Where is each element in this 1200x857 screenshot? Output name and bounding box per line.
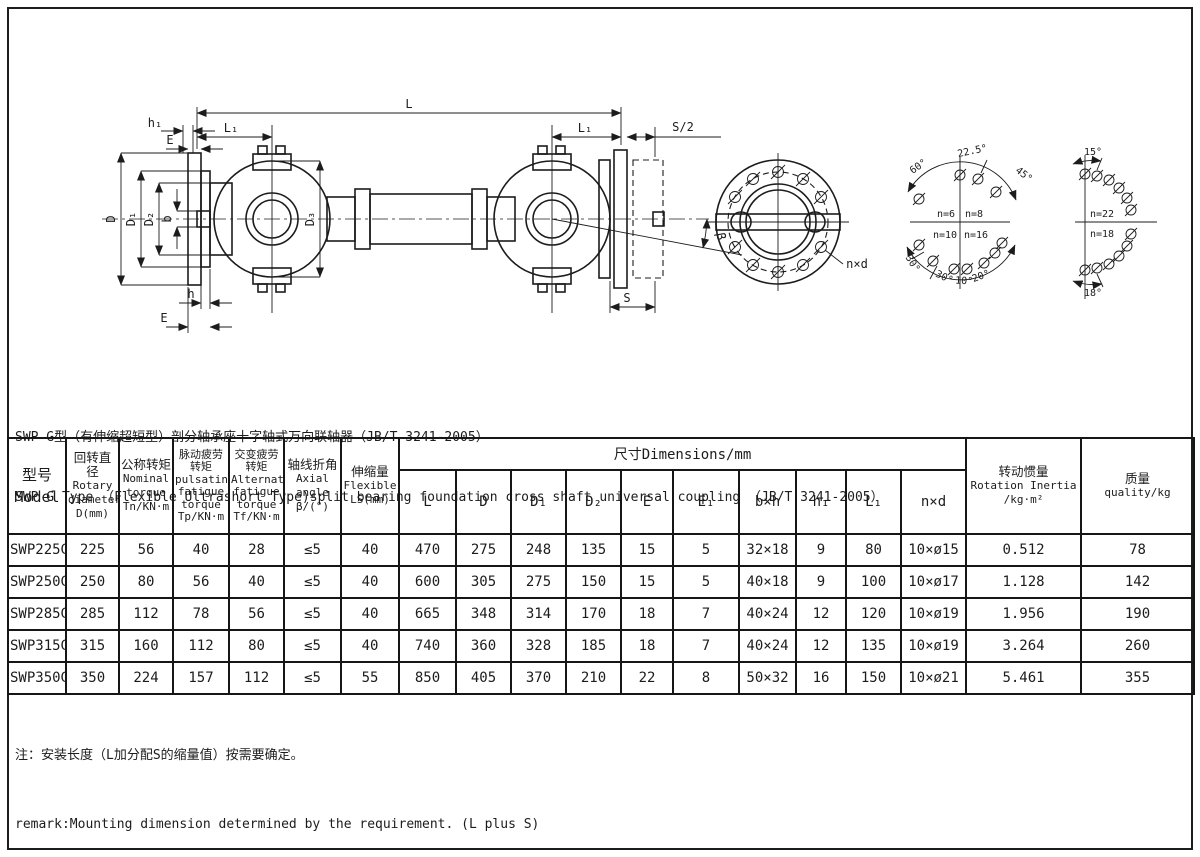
value-cell: 40: [341, 598, 399, 630]
technical-drawing: L L₁ L₁ S/2 h₁ E D: [7, 7, 1193, 390]
value-cell: 135: [846, 630, 901, 662]
col-header-pulsating-torque: 脉动疲劳转矩 pulsating fatigue torque Tp/KN·m: [173, 438, 229, 534]
value-cell: 260: [1081, 630, 1194, 662]
col-group-dimensions: 尺寸Dimensions/mm: [399, 438, 966, 470]
header-line: diameter: [68, 493, 117, 507]
table-row: SWP225G225564028≤54047027524813515532×18…: [8, 534, 1194, 566]
value-cell: 248: [511, 534, 566, 566]
value-cell: 1.128: [966, 566, 1081, 598]
dim-label-S: S: [623, 291, 630, 305]
value-cell: 250: [66, 566, 119, 598]
count-label-n22: n=22: [1090, 209, 1114, 220]
value-cell: 100: [846, 566, 901, 598]
bolt-angle-view-2: 15° 18° n=22 n=18: [1073, 147, 1157, 299]
col-header-quality: 质量 quality/kg: [1081, 438, 1194, 534]
header-line: Rotation Inertia: [968, 479, 1079, 493]
angle-label-18: 18°: [1084, 288, 1102, 299]
col-header-bxh: b×h: [739, 470, 796, 534]
dim-label-E-bottom: E: [160, 311, 167, 325]
dim-label-b: b: [160, 215, 174, 222]
count-label-n10: n=10: [933, 230, 957, 241]
value-cell: 135: [566, 534, 621, 566]
value-cell: 50×32: [739, 662, 796, 694]
model-cell: SWP315G: [8, 630, 66, 662]
col-header-rotary-diameter: 回转直径 Rotary diameter D(mm): [66, 438, 119, 534]
header-line: D(mm): [68, 507, 117, 521]
header-line: fatigue: [175, 486, 227, 499]
value-cell: 210: [566, 662, 621, 694]
col-header-alternating-torque: 交变疲劳转矩 Alternating fatigue torque Tf/KN·…: [229, 438, 284, 534]
value-cell: 80: [229, 630, 284, 662]
header-line: 回转直径: [68, 451, 117, 479]
value-cell: 157: [173, 662, 229, 694]
value-cell: 10×ø19: [901, 598, 966, 630]
value-cell: 32×18: [739, 534, 796, 566]
value-cell: 7: [673, 630, 739, 662]
dim-label-nxd: n×d: [846, 257, 868, 271]
col-header-L1: L₁: [846, 470, 901, 534]
value-cell: 348: [456, 598, 511, 630]
value-cell: 16: [796, 662, 846, 694]
header-line: Flexible: [343, 479, 397, 493]
value-cell: 305: [456, 566, 511, 598]
value-cell: 78: [1081, 534, 1194, 566]
flange-face-view: n×d: [707, 153, 868, 291]
model-cell: SWP285G: [8, 598, 66, 630]
value-cell: 56: [229, 598, 284, 630]
model-cell: SWP250G: [8, 566, 66, 598]
value-cell: 3.264: [966, 630, 1081, 662]
value-cell: 40: [173, 534, 229, 566]
col-header-D1: D₁: [511, 470, 566, 534]
table-row: SWP315G31516011280≤54074036032818518740×…: [8, 630, 1194, 662]
value-cell: 5: [673, 566, 739, 598]
value-cell: 40×24: [739, 598, 796, 630]
header-line: Nominal: [121, 472, 171, 486]
header-line: 轴线折角: [286, 458, 339, 472]
angle-label-45: 45°: [1013, 165, 1034, 185]
angle-label-20: 20°: [971, 268, 992, 285]
dim-label-D: D: [104, 215, 118, 222]
value-cell: 80: [846, 534, 901, 566]
value-cell: 225: [66, 534, 119, 566]
angle-label-15: 15°: [1084, 147, 1102, 158]
col-header-nxd: n×d: [901, 470, 966, 534]
header-line: 转动惯量: [968, 465, 1079, 479]
value-cell: 9: [796, 534, 846, 566]
value-cell: 190: [1081, 598, 1194, 630]
value-cell: 18: [621, 630, 673, 662]
value-cell: 285: [66, 598, 119, 630]
spec-table: 型号 Model 回转直径 Rotary diameter D(mm) 公称转矩…: [7, 437, 1195, 695]
header-line: fatigue: [231, 486, 282, 499]
table-row: SWP285G2851127856≤54066534831417018740×2…: [8, 598, 1194, 630]
value-cell: 22: [621, 662, 673, 694]
value-cell: 314: [511, 598, 566, 630]
value-cell: 350: [66, 662, 119, 694]
value-cell: ≤5: [284, 598, 341, 630]
value-cell: 18: [621, 598, 673, 630]
value-cell: 405: [456, 662, 511, 694]
value-cell: 40: [341, 630, 399, 662]
value-cell: 8: [673, 662, 739, 694]
datasheet-page: L L₁ L₁ S/2 h₁ E D: [0, 0, 1200, 857]
value-cell: 28: [229, 534, 284, 566]
value-cell: 55: [341, 662, 399, 694]
model-cell: SWP225G: [8, 534, 66, 566]
angle-label-30-left: 30°: [903, 253, 922, 274]
value-cell: 5: [673, 534, 739, 566]
value-cell: 850: [399, 662, 456, 694]
dim-label-h1: h₁: [148, 116, 162, 130]
value-cell: 112: [229, 662, 284, 694]
col-header-nominal-torque: 公称转矩 Nominal torque Tn/KN·m: [119, 438, 173, 534]
dim-label-h: h: [187, 287, 194, 301]
value-cell: 40×18: [739, 566, 796, 598]
dim-label-L: L: [405, 97, 412, 111]
col-header-h1: h₁: [796, 470, 846, 534]
value-cell: 40×24: [739, 630, 796, 662]
header-line: quality/kg: [1083, 486, 1192, 500]
dim-label-L1-left: L₁: [224, 121, 238, 135]
value-cell: 600: [399, 566, 456, 598]
value-cell: 355: [1081, 662, 1194, 694]
col-header-D2: D₂: [566, 470, 621, 534]
col-header-E: E: [621, 470, 673, 534]
count-label-n8: n=8: [965, 209, 983, 220]
value-cell: 78: [173, 598, 229, 630]
value-cell: ≤5: [284, 630, 341, 662]
value-cell: 10×ø19: [901, 630, 966, 662]
header-line: 型号: [10, 464, 64, 486]
spec-table-body: SWP225G225564028≤54047027524813515532×18…: [8, 534, 1194, 694]
header-line: Tf/KN·m: [231, 511, 282, 524]
value-cell: 315: [66, 630, 119, 662]
value-cell: 15: [621, 534, 673, 566]
value-cell: 7: [673, 598, 739, 630]
header-line: torque: [121, 486, 171, 500]
header-line: Rotary: [68, 479, 117, 493]
header-line: LS(mm): [343, 493, 397, 507]
value-cell: 5.461: [966, 662, 1081, 694]
count-label-n6: n=6: [937, 209, 955, 220]
value-cell: 40: [229, 566, 284, 598]
value-cell: 40: [341, 566, 399, 598]
value-cell: 112: [119, 598, 173, 630]
value-cell: 160: [119, 630, 173, 662]
value-cell: 0.512: [966, 534, 1081, 566]
remark-en: remark:Mounting dimension determined by …: [15, 813, 539, 836]
value-cell: 10×ø17: [901, 566, 966, 598]
count-label-n18: n=18: [1090, 229, 1114, 240]
value-cell: 120: [846, 598, 901, 630]
value-cell: 360: [456, 630, 511, 662]
header-line: Model: [10, 486, 64, 508]
value-cell: 10×ø15: [901, 534, 966, 566]
table-row: SWP250G250805640≤54060030527515015540×18…: [8, 566, 1194, 598]
header-line: 交变疲劳转矩: [231, 449, 282, 474]
value-cell: 185: [566, 630, 621, 662]
header-line: 公称转矩: [121, 458, 171, 472]
col-header-L: L: [399, 470, 456, 534]
value-cell: 40: [341, 534, 399, 566]
value-cell: 150: [566, 566, 621, 598]
col-header-flexible: 伸缩量 Flexible LS(mm): [341, 438, 399, 534]
dim-label-S2: S/2: [672, 120, 694, 134]
col-header-model: 型号 Model: [8, 438, 66, 534]
value-cell: 56: [173, 566, 229, 598]
header-line: 脉动疲劳转矩: [175, 449, 227, 474]
value-cell: 275: [511, 566, 566, 598]
value-cell: 1.956: [966, 598, 1081, 630]
header-line: Tp/KN·m: [175, 511, 227, 524]
header-line: Axial angle: [286, 472, 339, 500]
angle-label-10: 10°: [955, 276, 974, 288]
dim-label-E-top: E: [166, 133, 173, 147]
value-cell: 665: [399, 598, 456, 630]
value-cell: 112: [173, 630, 229, 662]
value-cell: 275: [456, 534, 511, 566]
col-header-E1: E₁: [673, 470, 739, 534]
header-line: β/(°): [286, 500, 339, 514]
value-cell: 150: [846, 662, 901, 694]
model-cell: SWP350G: [8, 662, 66, 694]
value-cell: 80: [119, 566, 173, 598]
dim-label-L1-right: L₁: [578, 121, 592, 135]
dim-label-D3: D₃: [303, 212, 317, 226]
value-cell: 142: [1081, 566, 1194, 598]
col-header-D: D: [456, 470, 511, 534]
header-line: 质量: [1083, 472, 1192, 486]
value-cell: 328: [511, 630, 566, 662]
value-cell: 224: [119, 662, 173, 694]
value-cell: ≤5: [284, 662, 341, 694]
value-cell: 170: [566, 598, 621, 630]
header-line: /kg·m²: [968, 493, 1079, 507]
value-cell: 740: [399, 630, 456, 662]
angle-label-60: 60°: [908, 157, 929, 176]
value-cell: 15: [621, 566, 673, 598]
count-label-n16: n=16: [964, 230, 988, 241]
remark-zh: 注：安装长度（L加分配S的缩量值）按需要确定。: [15, 744, 539, 767]
value-cell: 12: [796, 630, 846, 662]
header-line: Tn/KN·m: [121, 500, 171, 514]
dim-label-beta: β: [713, 232, 728, 242]
value-cell: 10×ø21: [901, 662, 966, 694]
header-line: 伸缩量: [343, 465, 397, 479]
value-cell: 56: [119, 534, 173, 566]
value-cell: ≤5: [284, 534, 341, 566]
value-cell: 370: [511, 662, 566, 694]
table-row: SWP350G350224157112≤55585040537021022850…: [8, 662, 1194, 694]
bolt-angle-view-1: 60° 22.5° 45° n=6 n=8 n=10 n=16 30° 30° …: [903, 143, 1034, 289]
col-header-axial-angle: 轴线折角 Axial angle β/(°): [284, 438, 341, 534]
value-cell: 470: [399, 534, 456, 566]
value-cell: 12: [796, 598, 846, 630]
value-cell: 9: [796, 566, 846, 598]
value-cell: ≤5: [284, 566, 341, 598]
remark-block: 注：安装长度（L加分配S的缩量值）按需要确定。 remark:Mounting …: [15, 698, 539, 857]
angle-label-22-5: 22.5°: [957, 143, 989, 160]
dim-label-D1: D₁: [124, 212, 138, 226]
main-side-view: L L₁ L₁ S/2 h₁ E D: [102, 97, 742, 333]
col-header-rotation-inertia: 转动惯量 Rotation Inertia /kg·m²: [966, 438, 1081, 534]
dim-label-D2: D₂: [142, 212, 156, 226]
